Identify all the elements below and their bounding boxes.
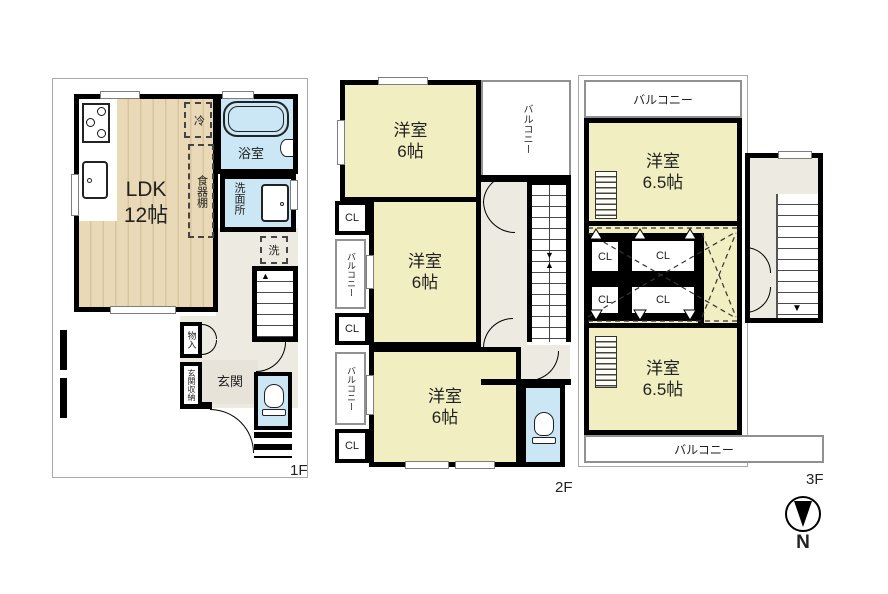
- window-mark: [71, 174, 79, 216]
- bathtub-inner: [228, 106, 284, 132]
- room-label: 洋室 6帖: [345, 85, 476, 197]
- cl-label: CL: [656, 250, 670, 262]
- balcony-2f-left-2: バルコニー: [335, 352, 366, 425]
- room-western-3f-bottom: 洋室 6.5帖: [584, 323, 742, 435]
- balcony-2f-left-1: バルコニー: [335, 239, 366, 309]
- laundry-label: 洗: [269, 242, 280, 258]
- window-mark: [290, 180, 298, 210]
- entrance-storage-closet: 玄関収納: [180, 362, 202, 408]
- room-label: 洋室 6帖: [374, 202, 476, 342]
- room-bath: 浴室: [216, 94, 298, 174]
- stairs-3f: ▼: [776, 194, 818, 318]
- stairs-up-arrow: ▲: [261, 272, 270, 281]
- window-mark: [455, 461, 495, 469]
- stairs-down-arrow: ▼: [792, 304, 802, 314]
- toilet-icon: [532, 412, 556, 444]
- vanity-sink-icon: [261, 184, 289, 222]
- entrance-label-wrap: 玄関: [202, 360, 258, 404]
- room-name: 洋室: [428, 386, 462, 407]
- balcony-2f-top: バルコニー: [481, 80, 571, 178]
- room-toilet-2f: [521, 383, 565, 467]
- balcony-label: バルコニー: [674, 441, 734, 458]
- floor-plan-canvas: LDK 12帖 冷 食器棚: [0, 0, 888, 594]
- laundry-box: 洗: [260, 236, 288, 264]
- floor-2f: バルコニー 洋室 6帖 洋室 6帖 洋室 6帖 ▼ ▲: [333, 75, 583, 500]
- exterior-wall-stub: [60, 378, 67, 418]
- closet-2f-2: CL: [335, 313, 369, 345]
- compass-north-label: N: [778, 532, 828, 554]
- window-mark: [378, 77, 428, 85]
- toilet-bowl: [264, 384, 284, 408]
- closet-3f-2: CL: [628, 237, 698, 275]
- window-mark: [222, 91, 254, 99]
- room-size: 6.5帖: [643, 172, 684, 193]
- cupboard-label: 食器棚: [196, 175, 207, 208]
- room-size: 6帖: [412, 272, 438, 293]
- storage-label: 物入: [187, 331, 196, 349]
- fridge-label: 冷: [193, 115, 204, 126]
- room-ldk: LDK 12帖 冷 食器棚: [74, 94, 218, 312]
- cl-label: CL: [598, 251, 612, 263]
- closet-3f-1: CL: [588, 238, 622, 275]
- floor-label-1f: 1F: [290, 462, 308, 479]
- stove-icon: [82, 103, 110, 143]
- vanity-drain: [280, 202, 284, 206]
- compass: N: [778, 490, 838, 554]
- toilet-bowl: [534, 412, 554, 436]
- balcony-3f-top: バルコニー: [584, 80, 742, 118]
- washroom-label: 洗面所: [233, 182, 244, 215]
- room-western-2f-mid: 洋室 6帖: [369, 197, 481, 347]
- kitchen-counter: [79, 99, 117, 221]
- room-size: 6帖: [397, 141, 423, 162]
- wall: [737, 223, 742, 323]
- floor-1f: LDK 12帖 冷 食器棚: [52, 78, 308, 478]
- wall: [481, 379, 571, 385]
- balcony-3f-bottom: バルコニー: [584, 435, 824, 463]
- closet-3f-4: CL: [628, 283, 698, 317]
- window-mark: [337, 120, 345, 165]
- closet-2f-3: CL: [335, 429, 369, 463]
- exterior-wall-stub: [60, 330, 67, 370]
- entrance-storage-label: 玄関収納: [187, 369, 195, 401]
- bath-label-wrap: 浴室: [221, 143, 281, 163]
- cl-label: CL: [345, 440, 359, 452]
- cupboard-box: 食器棚: [188, 144, 214, 238]
- storage-closet: 物入: [180, 322, 202, 358]
- balcony-label: バルコニー: [521, 104, 531, 154]
- kitchen-sink-icon: [82, 161, 108, 199]
- stairs-2f: ▼ ▲: [527, 180, 571, 342]
- porch-steps: [254, 432, 292, 458]
- bath-label: 浴室: [238, 146, 264, 161]
- entrance-label: 玄関: [217, 374, 243, 390]
- bathtub-icon: [223, 101, 289, 137]
- wall: [584, 275, 704, 283]
- window-mark: [405, 461, 449, 469]
- room-western-2f-top: 洋室 6帖: [340, 80, 481, 202]
- room-name: 洋室: [394, 120, 428, 141]
- balcony-label: バルコニー: [346, 366, 355, 411]
- stairs-down-arrow: ▼: [545, 251, 554, 260]
- stove-burner: [97, 107, 106, 116]
- compass-needle-icon: [794, 501, 812, 527]
- window-mark: [778, 151, 812, 159]
- room-name: 洋室: [646, 151, 680, 172]
- room-size: 6帖: [432, 407, 458, 428]
- toilet-tank: [262, 409, 286, 416]
- window-mark: [366, 375, 374, 415]
- room-label: 洋室 6帖: [374, 352, 516, 462]
- fridge-box: 冷: [184, 102, 212, 138]
- stairs-1f: ▲: [252, 266, 298, 342]
- room-western-3f-top: 洋室 6.5帖: [584, 118, 742, 226]
- cl-label: CL: [345, 212, 359, 224]
- room-name: 洋室: [646, 358, 680, 379]
- room-entrance: 玄関: [202, 360, 258, 404]
- closet-3f-3: CL: [588, 283, 622, 317]
- balcony-label: バルコニー: [633, 91, 693, 108]
- stove-burner: [86, 118, 95, 127]
- washbowl-icon: [280, 139, 293, 157]
- window-mark: [366, 255, 374, 289]
- ladder-icon: [595, 171, 617, 219]
- toilet-icon: [262, 384, 286, 416]
- window-mark: [110, 306, 176, 314]
- sink-drain: [87, 178, 92, 183]
- room-washroom: 洗面所: [220, 174, 296, 232]
- floor-label-2f: 2F: [555, 479, 573, 496]
- ldk-size: 12帖: [124, 203, 168, 229]
- ldk-name: LDK: [126, 177, 167, 203]
- cl-label: CL: [656, 294, 670, 306]
- wall: [698, 233, 704, 323]
- window-mark: [100, 91, 140, 99]
- ladder-icon: [595, 336, 617, 388]
- stairs-up-arrow: ▲: [545, 261, 554, 270]
- stove-burner: [97, 129, 106, 138]
- room-western-2f-bottom: 洋室 6帖: [369, 347, 521, 467]
- floor-label-3f: 3F: [806, 471, 824, 488]
- cl-label: CL: [345, 323, 359, 335]
- room-name: 洋室: [408, 251, 442, 272]
- toilet-tank: [532, 437, 556, 444]
- balcony-label: バルコニー: [346, 252, 355, 297]
- cl-label: CL: [598, 294, 612, 306]
- closet-2f-1: CL: [335, 201, 369, 235]
- room-toilet-1f: [254, 372, 292, 430]
- floor-3f: バルコニー 洋室 6.5帖 CL CL CL CL: [578, 75, 836, 495]
- room-size: 6.5帖: [643, 379, 684, 400]
